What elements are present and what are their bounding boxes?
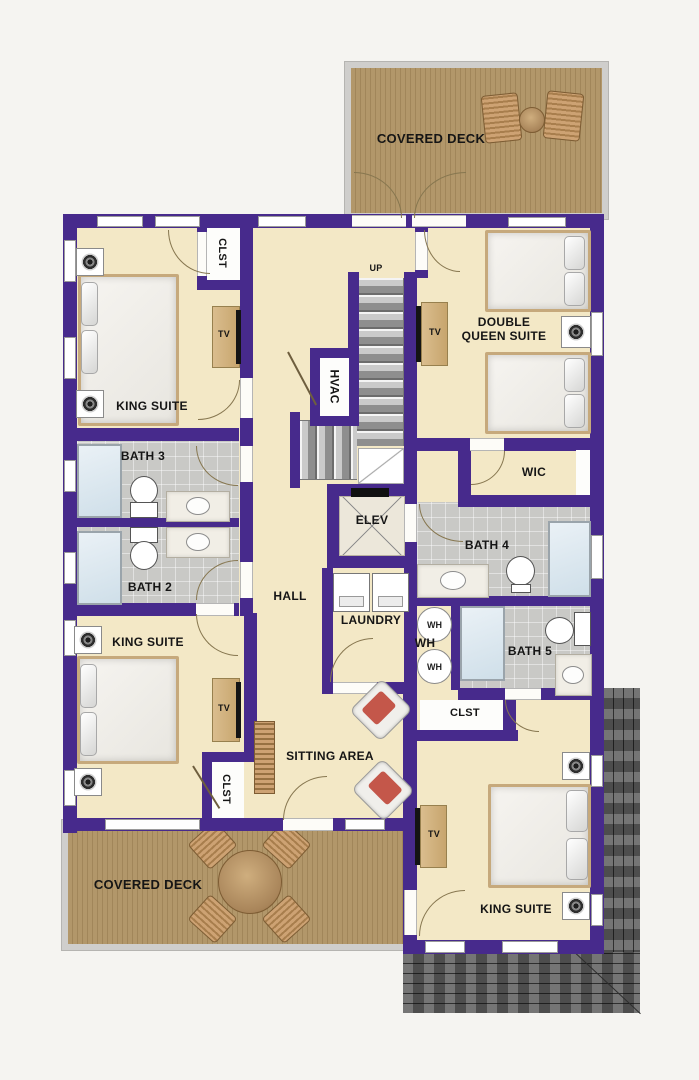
tv-label: TV — [212, 330, 236, 340]
sitting-area-label: SITTING AREA — [266, 750, 394, 763]
elevator-label: ELEV — [341, 514, 403, 527]
window — [502, 941, 558, 953]
laundry-label: LAUNDRY — [328, 614, 414, 627]
sink — [440, 571, 466, 590]
dryer — [372, 573, 409, 612]
pillow — [564, 272, 585, 306]
covered-deck-top-label: COVERED DECK — [373, 132, 489, 146]
pillow — [81, 282, 98, 326]
door-gap — [404, 890, 417, 935]
pillow — [564, 236, 585, 270]
window — [105, 819, 200, 830]
covered-deck-bottom: COVERED DECK — [62, 820, 411, 950]
covered-deck-bottom-label: COVERED DECK — [88, 878, 208, 892]
window — [591, 535, 603, 579]
wall — [310, 348, 320, 426]
floor-plan: COVERED DECK COVERED DECK UP — [0, 0, 699, 1080]
window — [345, 819, 385, 830]
window — [591, 894, 603, 926]
double-queen-label-line2: QUEEN SUITE — [452, 330, 556, 343]
king-suite-middle-label: KING SUITE — [96, 636, 200, 649]
hvac-label: HVAC — [327, 362, 340, 412]
window — [64, 337, 76, 379]
pillow — [566, 838, 588, 880]
nightstand-lamp — [76, 248, 104, 276]
stairs-up-label: UP — [360, 264, 392, 274]
water-heater-nook-label: WH — [410, 637, 440, 650]
closet-bottom-left-label: CLST — [220, 769, 232, 809]
wall — [410, 438, 604, 451]
door-gap — [240, 562, 253, 598]
window — [155, 216, 200, 227]
closet-top-label: CLST — [216, 233, 228, 273]
staircase-upper-flight — [356, 278, 404, 446]
wall — [63, 214, 77, 833]
wall — [458, 495, 604, 507]
pillow — [564, 394, 585, 428]
wic-shelf — [576, 450, 590, 495]
window — [258, 216, 306, 227]
wall — [290, 412, 300, 488]
sink — [562, 666, 584, 684]
tv-label: TV — [423, 328, 447, 338]
bath-4-label: BATH 4 — [451, 539, 523, 552]
tv-screen — [416, 306, 421, 362]
pillow — [80, 712, 97, 756]
door-gap — [505, 688, 541, 700]
toilet-tank — [511, 584, 531, 593]
deck-lounge-chair — [481, 92, 523, 144]
toilet-tank — [130, 502, 158, 518]
pillow — [566, 790, 588, 832]
tv-label: TV — [422, 830, 446, 840]
shower — [548, 521, 591, 597]
king-suite-bottom-label: KING SUITE — [462, 903, 570, 916]
tv-screen — [415, 808, 420, 865]
sink — [186, 533, 210, 551]
tv-screen — [236, 682, 241, 738]
window — [425, 941, 465, 953]
wall — [451, 606, 460, 690]
bath-2-label: BATH 2 — [114, 581, 186, 594]
deck-round-table — [218, 850, 282, 914]
shower — [460, 606, 505, 681]
door-gap — [240, 446, 253, 482]
sink — [186, 497, 210, 515]
window — [64, 460, 76, 492]
deck-side-table — [519, 107, 545, 133]
pillow — [80, 664, 97, 708]
roof-bottom — [403, 952, 640, 1013]
nightstand-lamp — [562, 752, 590, 780]
water-heater: WH — [417, 649, 452, 684]
door-gap — [240, 378, 253, 418]
nightstand-lamp — [561, 316, 591, 348]
window — [64, 240, 76, 282]
washer — [333, 573, 370, 612]
toilet-tank — [574, 612, 591, 646]
toilet — [130, 541, 158, 570]
nightstand-lamp — [74, 768, 102, 796]
tv-screen — [236, 310, 241, 364]
window — [97, 216, 143, 227]
wic-label: WIC — [498, 466, 570, 479]
closet-bottom-right-label: CLST — [424, 707, 506, 719]
door-gap — [470, 438, 504, 451]
pillow — [564, 358, 585, 392]
window — [591, 755, 603, 787]
bath-3-label: BATH 3 — [107, 450, 179, 463]
wall — [310, 416, 359, 426]
deck-lounge-chair — [543, 90, 585, 142]
toilet — [506, 556, 535, 586]
door-gap — [404, 504, 417, 542]
double-queen-label-line1: DOUBLE — [452, 316, 556, 329]
tv-label: TV — [212, 704, 236, 714]
king-suite-top-label: KING SUITE — [100, 400, 204, 413]
toilet — [545, 617, 574, 644]
window — [591, 312, 603, 356]
pillow — [81, 330, 98, 374]
window — [64, 552, 76, 584]
staircase-lower-flight — [300, 420, 357, 480]
hall-label: HALL — [254, 590, 326, 603]
toilet — [130, 476, 158, 505]
stair-landing — [358, 448, 404, 484]
bath-5-label: BATH 5 — [493, 645, 567, 658]
wall — [197, 280, 253, 290]
wall — [63, 428, 239, 441]
window — [508, 217, 566, 227]
elevator-door — [351, 488, 389, 497]
